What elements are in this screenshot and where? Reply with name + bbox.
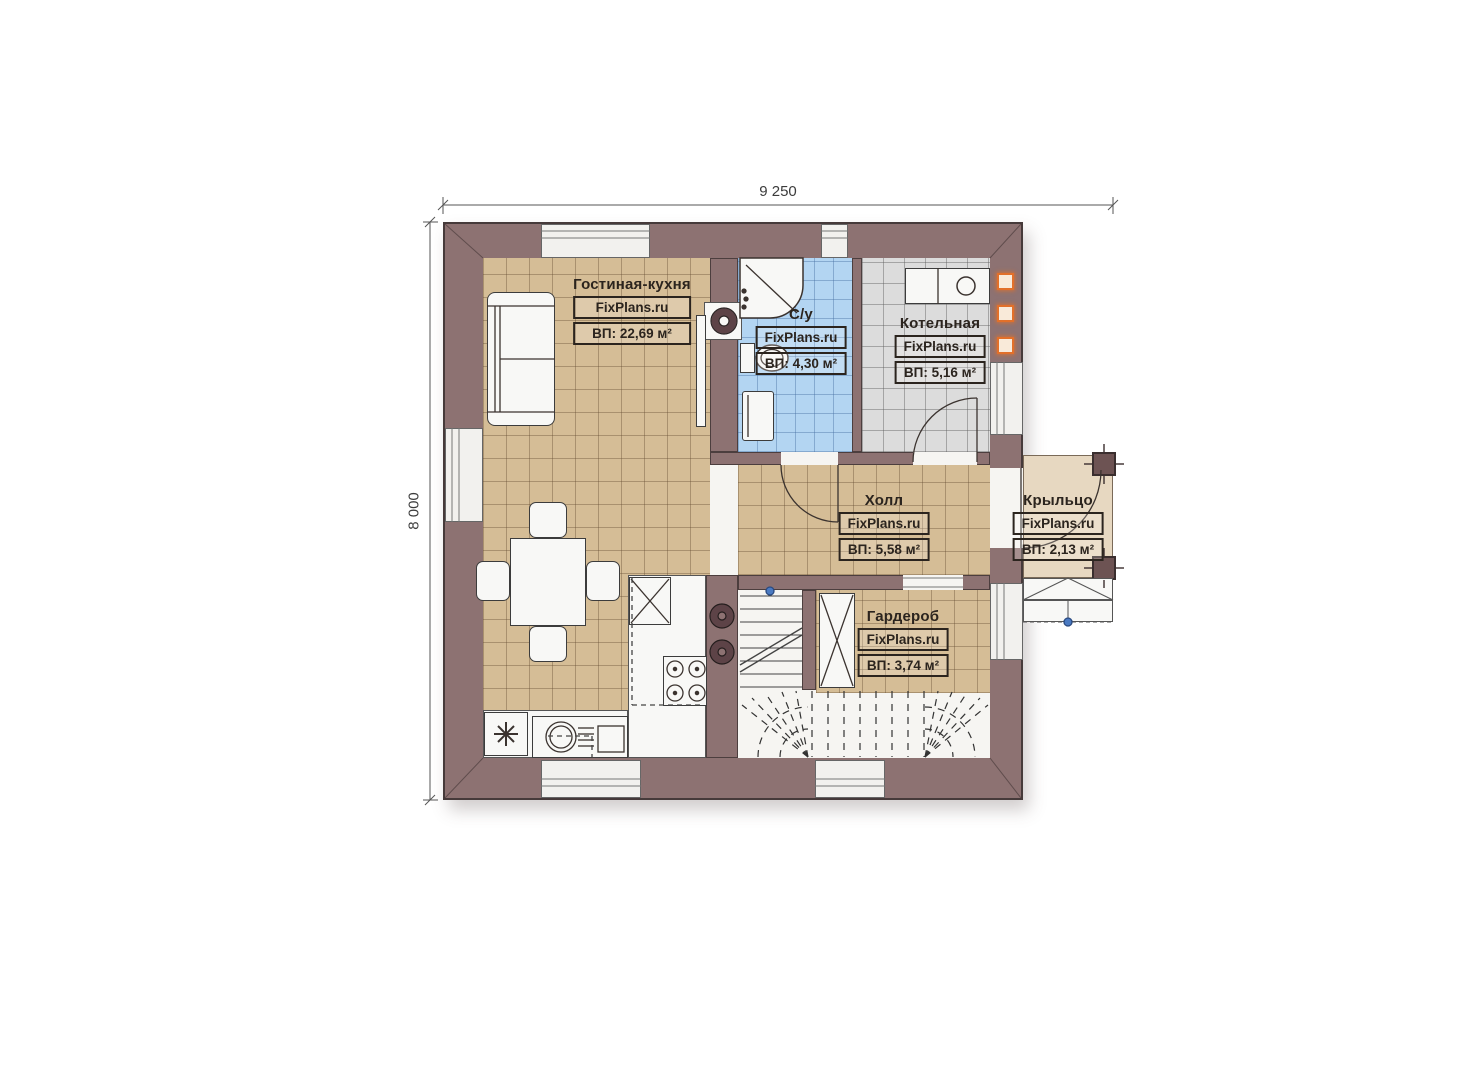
door-opening-bathroom [781, 452, 838, 465]
opening-hall-wardrobe [903, 575, 963, 590]
room-label-wardrobe: Гардероб FixPlans.ru ВП: 3,74 м² [858, 608, 949, 677]
wall-vent-1 [997, 273, 1014, 290]
toilet-tank [740, 343, 755, 373]
door-opening-boiler [913, 452, 977, 465]
dining-table [510, 538, 586, 626]
kitchen-cabinet [629, 577, 671, 625]
room-brand-porch: FixPlans.ru [1013, 512, 1104, 535]
wall-vent-2 [997, 305, 1014, 322]
washing-machine [742, 391, 774, 441]
room-label-hall: Холл FixPlans.ru ВП: 5,58 м² [839, 492, 930, 561]
room-label-living: Гостиная-кухня FixPlans.ru ВП: 22,69 м² [573, 276, 691, 345]
floor-plan-page: 9 250 8 000 Гостиная-кухня FixPlans.ru В… [0, 0, 1473, 1080]
room-area-hall: ВП: 5,58 м² [839, 538, 930, 561]
porch-step-1 [1023, 578, 1113, 600]
window-top-bathroom [821, 224, 848, 258]
chair-bottom [529, 626, 567, 662]
room-name-porch: Крыльцо [1013, 492, 1104, 509]
room-name-living: Гостиная-кухня [573, 276, 691, 293]
room-label-boiler: Котельная FixPlans.ru ВП: 5,16 м² [895, 315, 986, 384]
window-top-living [541, 224, 650, 258]
boiler-unit [905, 268, 990, 304]
stairs-upper-flight-area [738, 590, 802, 693]
room-area-wardrobe: ВП: 3,74 м² [858, 654, 949, 677]
wall-stairs-wardrobe [802, 590, 816, 690]
room-name-hall: Холл [839, 492, 930, 509]
sofa [487, 292, 555, 426]
window-bottom-kitchen [541, 760, 641, 798]
wardrobe-closet [819, 593, 855, 688]
kitchen-sink-unit [532, 716, 628, 758]
stairs-winder-area [738, 693, 990, 758]
room-brand-bathroom: FixPlans.ru [756, 326, 847, 349]
room-name-boiler: Котельная [895, 315, 986, 332]
wall-vent-3 [997, 337, 1014, 354]
porch-column-top [1092, 452, 1116, 476]
passage-living-hall [710, 465, 738, 575]
room-brand-wardrobe: FixPlans.ru [858, 628, 949, 651]
room-name-wardrobe: Гардероб [858, 608, 949, 625]
room-label-porch: Крыльцо FixPlans.ru ВП: 2,13 м² [1013, 492, 1104, 561]
room-brand-living: FixPlans.ru [573, 296, 691, 319]
room-brand-boiler: FixPlans.ru [895, 335, 986, 358]
dimension-width-label: 9 250 [759, 183, 797, 200]
dimension-height-label: 8 000 [406, 492, 423, 530]
fridge-unit [484, 712, 528, 756]
room-area-living: ВП: 22,69 м² [573, 322, 691, 345]
chair-left [476, 561, 510, 601]
sliding-door-leaf [696, 315, 706, 427]
stove [663, 656, 707, 706]
chair-right [586, 561, 620, 601]
window-bottom-stairs [815, 760, 885, 798]
porch-step-2 [1023, 600, 1113, 622]
wall-kitchen-stairs [706, 575, 738, 758]
window-right-wardrobe [990, 583, 1023, 660]
window-left-living [445, 428, 483, 522]
chair-top [529, 502, 567, 538]
room-area-bathroom: ВП: 4,30 м² [756, 352, 847, 375]
vent-shaft-box [704, 302, 742, 340]
window-right-boiler [990, 362, 1023, 435]
room-label-bathroom: С/у FixPlans.ru ВП: 4,30 м² [756, 306, 847, 375]
wall-bathroom-boiler [852, 258, 862, 452]
room-name-bathroom: С/у [756, 306, 847, 323]
room-area-boiler: ВП: 5,16 м² [895, 361, 986, 384]
wall-living-bathroom [710, 258, 738, 452]
room-area-porch: ВП: 2,13 м² [1013, 538, 1104, 561]
room-brand-hall: FixPlans.ru [839, 512, 930, 535]
